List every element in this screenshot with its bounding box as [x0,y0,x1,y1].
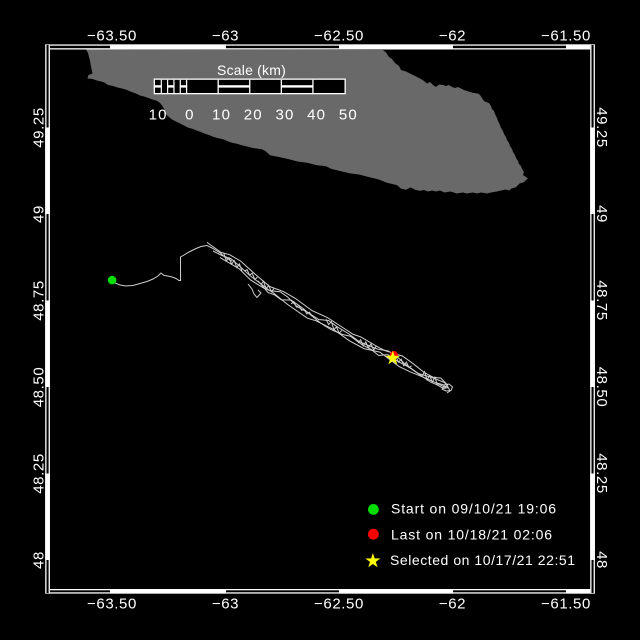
svg-text:48.75: 48.75 [593,280,610,321]
svg-text:−63: −63 [212,596,239,613]
svg-text:10: 10 [149,107,168,124]
svg-text:48.75: 48.75 [30,280,47,321]
svg-text:50: 50 [339,107,358,124]
svg-text:Selected on 10/17/21 22:51: Selected on 10/17/21 22:51 [390,552,576,568]
svg-text:−61.50: −61.50 [541,28,591,45]
svg-text:−62.50: −62.50 [314,596,364,613]
svg-text:0: 0 [185,107,195,124]
svg-text:49.25: 49.25 [30,107,47,148]
svg-text:−61.50: −61.50 [541,596,591,613]
svg-text:49.25: 49.25 [593,107,610,148]
svg-text:48: 48 [593,551,610,569]
svg-text:10: 10 [212,107,231,124]
svg-text:48.50: 48.50 [30,367,47,408]
svg-text:40: 40 [307,107,326,124]
svg-text:48.50: 48.50 [593,367,610,408]
svg-text:20: 20 [244,107,263,124]
svg-text:−62: −62 [439,28,466,45]
svg-text:Scale (km): Scale (km) [217,62,286,78]
svg-text:30: 30 [275,107,294,124]
svg-text:Start on 09/10/21 19:06: Start on 09/10/21 19:06 [391,501,557,517]
svg-text:48: 48 [30,551,47,569]
svg-text:−63.50: −63.50 [87,28,137,45]
svg-text:−62.50: −62.50 [314,28,364,45]
svg-text:48.25: 48.25 [30,453,47,494]
svg-text:−62: −62 [439,596,466,613]
svg-text:49: 49 [593,205,610,223]
svg-text:−63.50: −63.50 [87,596,137,613]
svg-text:49: 49 [30,205,47,223]
svg-text:48.25: 48.25 [593,453,610,494]
svg-text:Last on 10/18/21 02:06: Last on 10/18/21 02:06 [391,526,553,542]
svg-text:−63: −63 [212,28,239,45]
